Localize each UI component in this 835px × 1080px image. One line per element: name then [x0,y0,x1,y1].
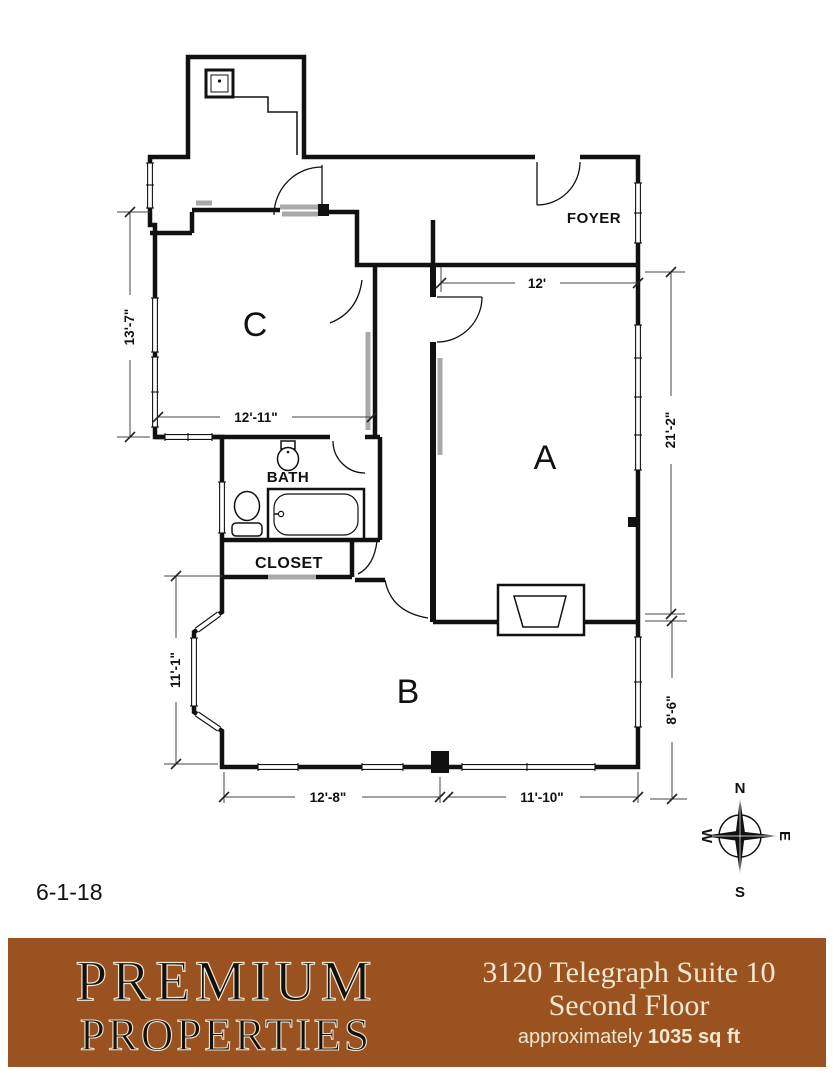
dim-a-width: 12' [436,267,643,292]
footer-banner: PREMIUM PROPERTIES 3120 Telegraph Suite … [8,938,826,1067]
fireplace-icon [498,585,584,635]
toilet-icon [278,441,299,471]
pedestal-sink-icon [232,492,262,537]
compass-north-label: N [735,780,746,797]
dim-c-height: 13'-7" [117,207,150,442]
dim-label-b-width-right: 11'-10" [520,790,563,805]
floor-plan-sheet: 13'-7" 12'-11" 12' 21'-2" [0,0,835,1080]
dim-c-width: 12'-11" [153,410,377,425]
window [634,325,642,470]
dim-label-c-width: 12'-11" [234,410,277,425]
window [362,763,403,771]
entry-door-arc [537,162,580,205]
room-b-label: B [397,673,420,711]
dim-label-bay-height: 11'-1" [168,652,183,688]
bath-door-arc [333,441,365,473]
listing-info: 3120 Telegraph Suite 10 Second Floor app… [438,956,826,1049]
window [165,433,212,441]
window [462,763,595,771]
foyer-label: FOYER [567,210,621,227]
listing-area-value: 1035 sq ft [648,1026,740,1048]
floor-plan: 13'-7" 12'-11" 12' 21'-2" [0,0,835,935]
room-c-door-arc [330,280,362,323]
listing-floor: Second Floor [438,989,820,1022]
compass-rose-icon: N S W E [698,780,793,901]
dim-label-b-width-left: 12'-8" [310,790,347,805]
bath-label: BATH [267,469,310,486]
closet-label: CLOSET [255,555,323,572]
date-label: 6-1-18 [36,879,102,905]
dim-b-width-left: 12'-8" [219,772,445,805]
compass-east-label: E [776,831,793,841]
dim-a-height: 21'-2" [645,267,685,619]
window [634,183,642,243]
window [218,482,226,533]
bathtub-icon [268,489,364,539]
outer-walls [150,57,638,773]
wall-post [628,517,638,527]
room-a-door-arc [437,297,482,342]
kitchen-sink-icon [206,70,233,97]
listing-area-prefix: approximately [518,1026,648,1048]
window [634,637,642,727]
compass-west-label: W [698,829,715,844]
brand-line2: PROPERTIES [80,1010,372,1060]
brand-logo: PREMIUM PROPERTIES [8,938,438,1067]
window [146,163,154,208]
brand-line1: PREMIUM [75,950,376,1013]
dim-label-a-height: 21'-2" [663,412,678,449]
listing-area: approximately 1035 sq ft [438,1025,820,1049]
dim-b-width-right: 11'-10" [443,772,643,805]
room-a-label: A [534,439,557,477]
room-b-door-arc [385,580,428,618]
dim-label-a-width: 12' [528,276,546,291]
dim-label-b-right-height: 8'-6" [664,695,679,724]
listing-address: 3120 Telegraph Suite 10 [438,956,820,989]
window [258,763,298,771]
closet-door-arc [358,541,377,574]
dim-label-c-height: 13'-7" [122,309,137,346]
wall-post [431,751,449,773]
compass-south-label: S [735,884,745,901]
room-c-label: C [243,306,268,344]
dim-b-right-height: 8'-6" [645,616,687,804]
window [151,298,159,352]
doors [274,162,580,618]
brand-logo-svg: PREMIUM PROPERTIES [8,938,438,1067]
